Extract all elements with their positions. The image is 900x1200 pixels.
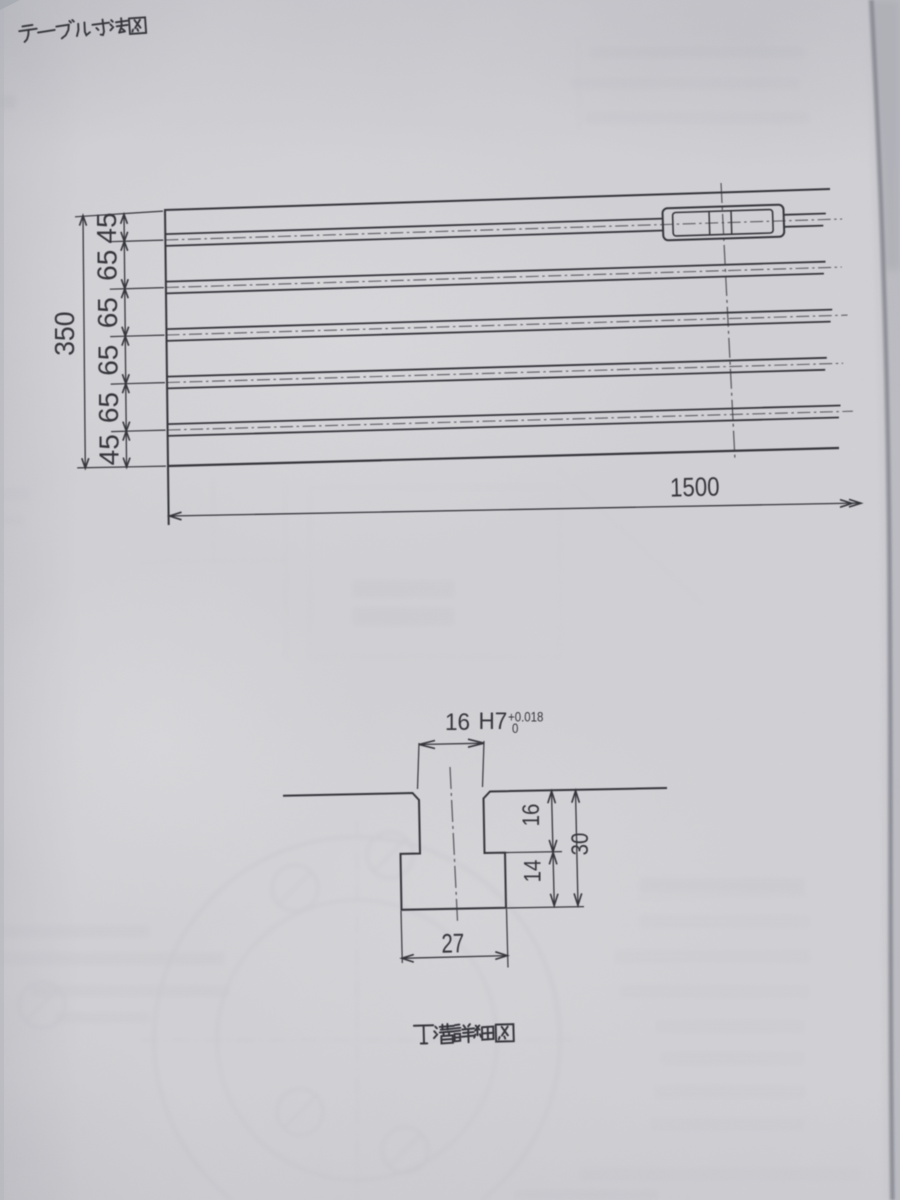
svg-text:65: 65 bbox=[93, 345, 124, 376]
svg-text:65: 65 bbox=[93, 392, 124, 423]
svg-text:45: 45 bbox=[91, 212, 122, 243]
svg-text:350: 350 bbox=[48, 312, 80, 356]
svg-text:27: 27 bbox=[441, 929, 464, 960]
svg-text:16: 16 bbox=[445, 708, 470, 735]
svg-text:1500: 1500 bbox=[670, 473, 720, 503]
svg-text:0: 0 bbox=[512, 721, 518, 736]
svg-text:30: 30 bbox=[566, 833, 593, 856]
svg-text:16: 16 bbox=[517, 804, 544, 827]
svg-text:65: 65 bbox=[92, 250, 123, 281]
svg-text:45: 45 bbox=[93, 434, 124, 465]
svg-text:65: 65 bbox=[92, 297, 123, 328]
svg-text:H7: H7 bbox=[479, 707, 508, 734]
svg-text:14: 14 bbox=[519, 860, 546, 883]
